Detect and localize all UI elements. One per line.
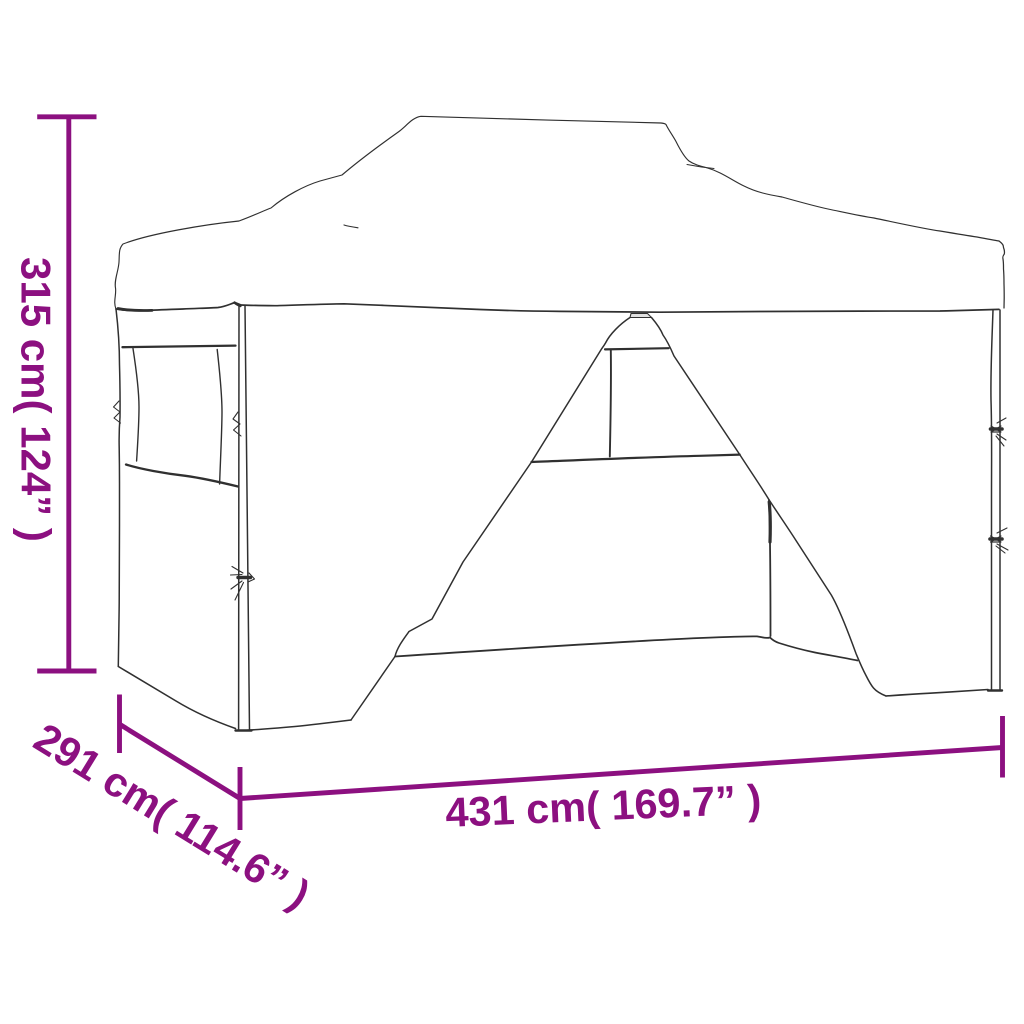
- svg-text:431 cm( 169.7” ): 431 cm( 169.7” ): [444, 775, 762, 836]
- svg-text:315 cm( 124” ): 315 cm( 124” ): [13, 257, 60, 542]
- svg-text:291 cm( 114.6” ): 291 cm( 114.6” ): [26, 714, 318, 918]
